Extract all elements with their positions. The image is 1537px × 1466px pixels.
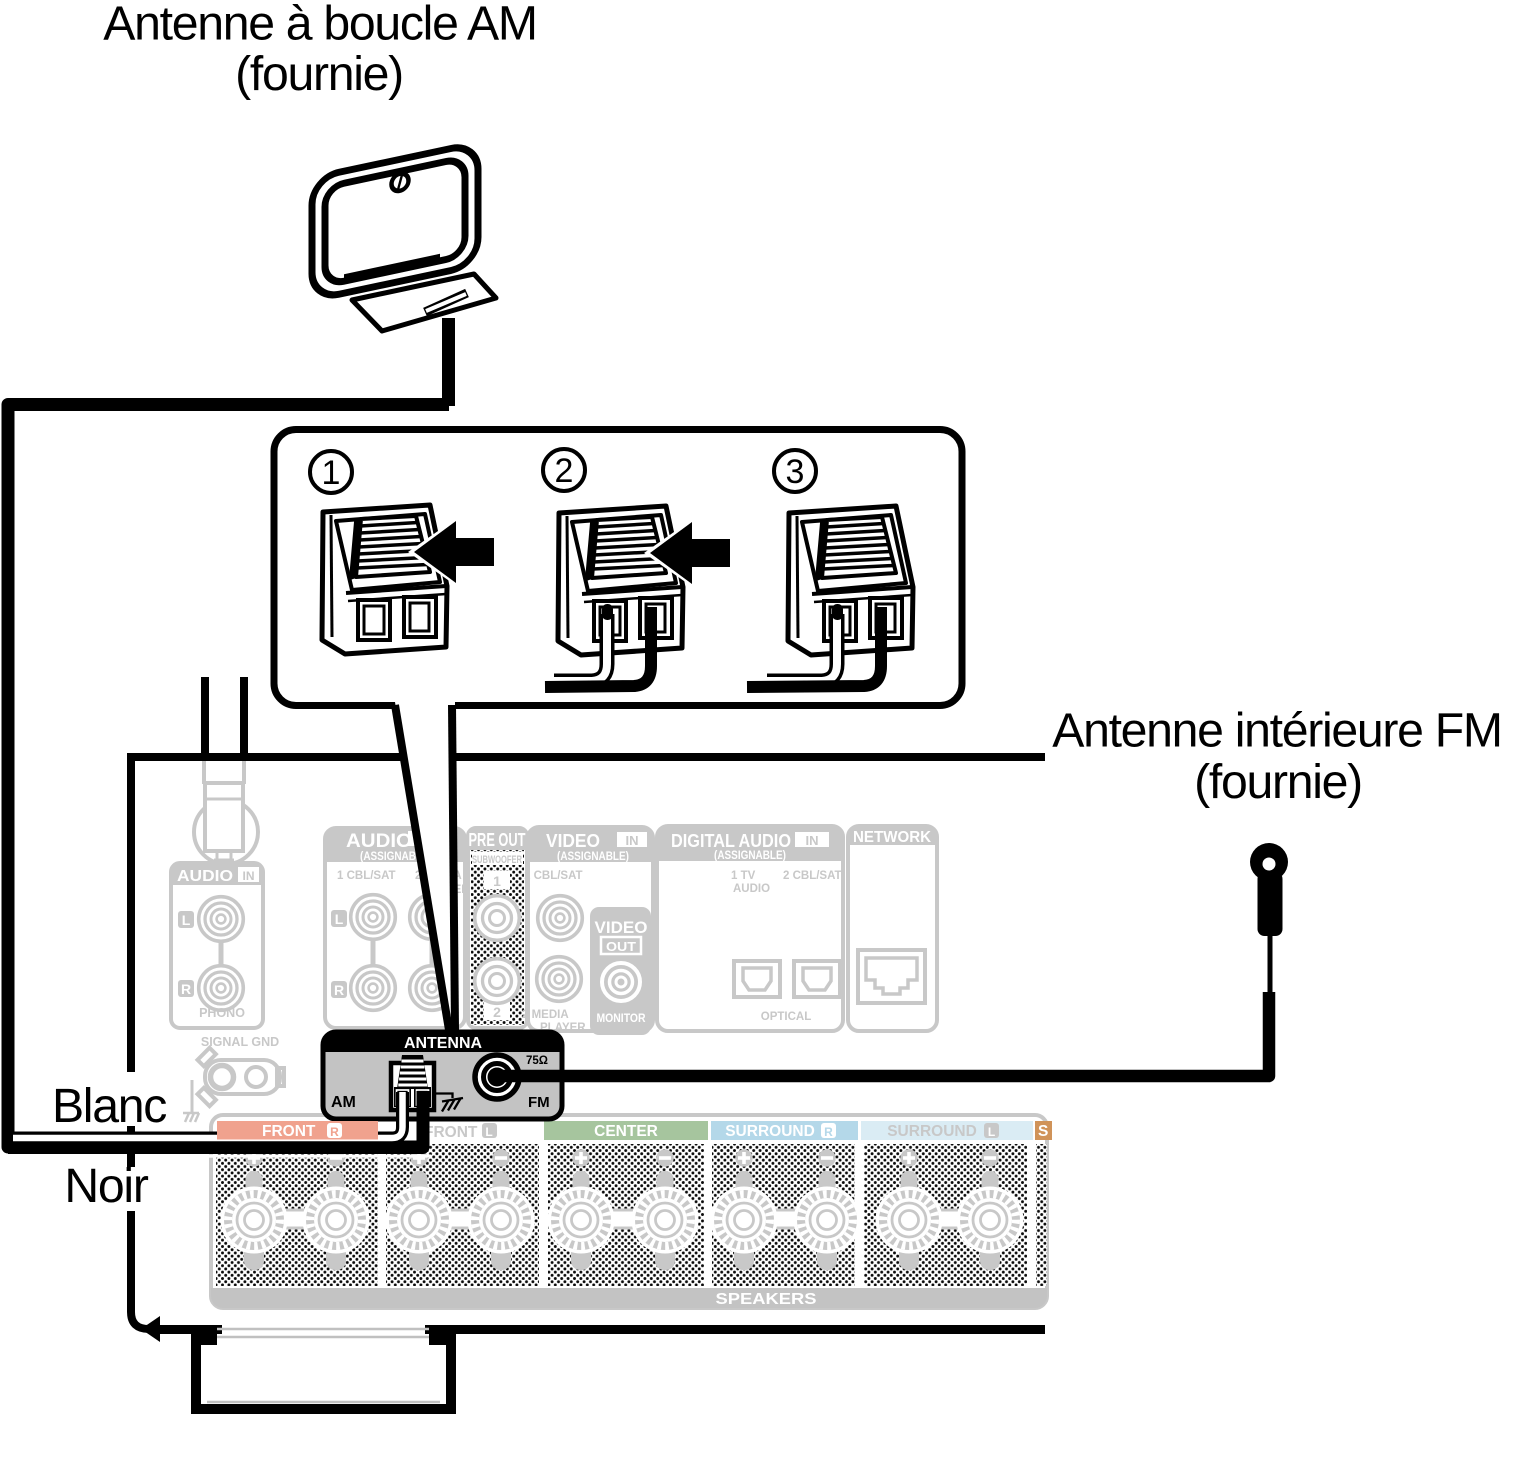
svg-text:1 TV: 1 TV [731,870,756,882]
svg-text:NETWORK: NETWORK [853,829,932,846]
svg-text:1: 1 [493,873,501,889]
svg-text:PHONO: PHONO [199,1006,245,1020]
svg-text:2: 2 [493,1004,501,1020]
svg-text:SIGNAL GND: SIGNAL GND [201,1035,279,1049]
svg-text:1 CBL/SAT: 1 CBL/SAT [337,870,396,882]
svg-text:Antenne intérieure FM: Antenne intérieure FM [1052,704,1501,758]
svg-text:ANTENNA: ANTENNA [404,1035,482,1052]
svg-text:R: R [181,981,191,997]
svg-text:L: L [182,912,191,928]
svg-text:S: S [1038,1123,1048,1140]
svg-text:AUDIO: AUDIO [733,883,770,895]
svg-text:OPTICAL: OPTICAL [761,1011,811,1023]
svg-text:SURROUND: SURROUND [887,1123,977,1140]
svg-text:AUDIO: AUDIO [177,868,233,885]
svg-text:1: 1 [322,454,341,492]
svg-text:FRONT: FRONT [424,1124,478,1141]
svg-text:(fournie): (fournie) [1194,755,1362,809]
svg-text:SUBWOOFER: SUBWOOFER [472,854,522,866]
svg-text:Noir: Noir [64,1159,148,1213]
svg-text:(ASSIGNABLE): (ASSIGNABLE) [557,849,629,863]
svg-text:L: L [988,1125,995,1139]
svg-text:MONITOR: MONITOR [597,1011,646,1025]
svg-text:75Ω: 75Ω [526,1055,548,1067]
svg-text:2: 2 [555,452,574,490]
svg-text:L: L [335,911,344,927]
svg-text:VIDEO: VIDEO [546,831,600,851]
svg-text:R: R [330,1125,339,1139]
svg-text:3: 3 [786,453,805,491]
svg-text:SURROUND: SURROUND [725,1123,815,1140]
svg-text:Blanc: Blanc [52,1079,166,1133]
svg-text:AM: AM [331,1094,356,1111]
svg-text:OUT: OUT [606,939,636,954]
svg-text:2 MEDIA: 2 MEDIA [522,1009,569,1021]
svg-text:CENTER: CENTER [594,1123,658,1140]
svg-text:VIDEO: VIDEO [595,918,648,937]
svg-text:FM: FM [528,1094,550,1111]
svg-text:R: R [334,982,344,998]
svg-text:IN: IN [806,833,819,848]
svg-text:R: R [824,1125,833,1139]
svg-text:SPEAKERS: SPEAKERS [716,1291,817,1308]
svg-text:IN: IN [243,869,255,883]
svg-text:PRE OUT: PRE OUT [469,830,526,850]
svg-text:(fournie): (fournie) [235,47,403,101]
svg-text:(ASSIGNABLE): (ASSIGNABLE) [714,848,786,862]
svg-text:Antenne à boucle AM: Antenne à boucle AM [103,0,536,51]
svg-text:L: L [485,1125,492,1139]
svg-text:IN: IN [626,833,639,848]
svg-text:2 CBL/SAT: 2 CBL/SAT [783,870,842,882]
svg-text:1 CBL/SAT: 1 CBL/SAT [524,870,583,882]
svg-text:FRONT: FRONT [262,1123,316,1140]
